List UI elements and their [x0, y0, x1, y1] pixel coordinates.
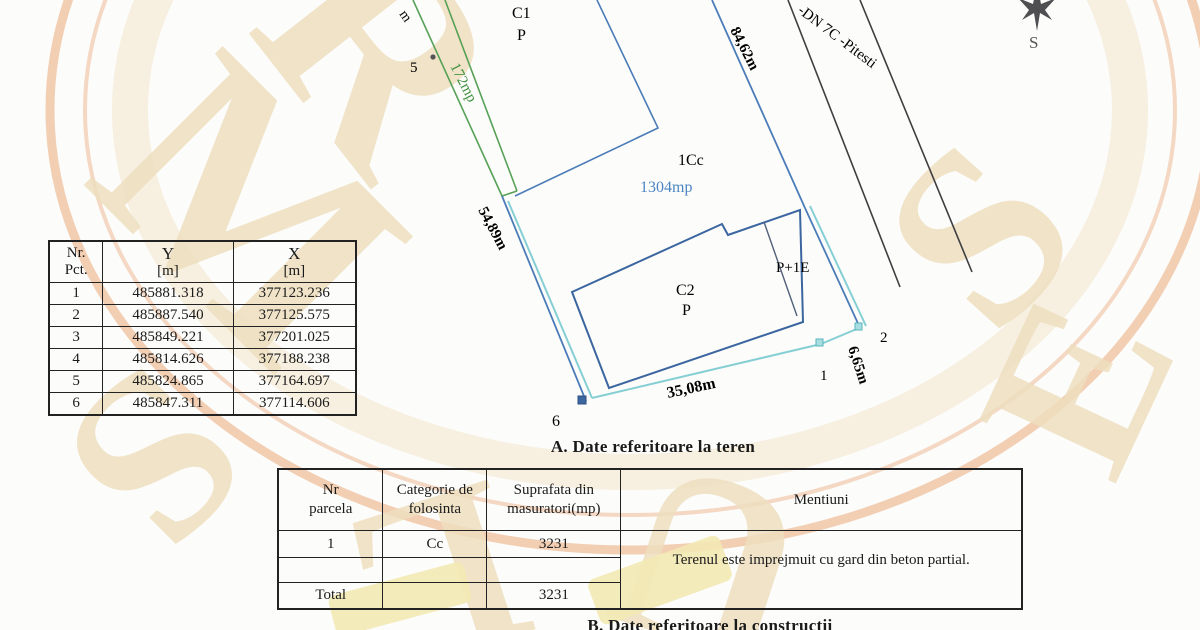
edge-fragment-label: m	[396, 8, 415, 26]
cell-point-y: 485814.626	[103, 349, 233, 371]
c2-floor-label: P	[682, 302, 691, 319]
cell-point-x: 377125.575	[233, 305, 356, 327]
fence-side-6m	[821, 328, 859, 344]
hdr-suprafata: Suprafata din	[514, 482, 594, 498]
point-5-marker	[430, 54, 435, 59]
hdr-categorie: Categorie de	[397, 482, 473, 498]
col-header-mentiuni: Mentiuni	[621, 469, 1022, 531]
cell-point-y: 485847.311	[103, 393, 233, 416]
col-header-pct: Pct.	[65, 262, 88, 278]
c2-label: C2	[676, 282, 695, 299]
col-header-nr-parcela: Nr parcela	[278, 469, 383, 531]
cell-point-x: 377201.025	[233, 327, 356, 349]
hdr-masuratori: masuratori(mp)	[507, 501, 600, 517]
coordinate-table: Nr. Pct. Y [m] X [m] 1 485881.318 377123…	[48, 240, 357, 416]
table-row: 4 485814.626 377188.238	[49, 349, 356, 371]
land-table-header: Nr parcela Categorie de folosinta Supraf…	[278, 469, 1022, 531]
c1-label: C1	[512, 5, 531, 22]
cell-total-area: 3231	[487, 583, 621, 610]
col-header-y: Y [m]	[103, 241, 233, 283]
dimension-left-label: 54,89m	[474, 204, 510, 253]
c2-outline	[572, 210, 803, 388]
cell-empty	[278, 558, 383, 583]
point-6-label: 6	[552, 413, 560, 430]
cell-point-x: 377123.236	[233, 283, 356, 305]
table-row: 1 Cc 3231 Terenul este imprejmuit cu gar…	[278, 531, 1022, 558]
col-header-x-unit: [m]	[283, 263, 305, 279]
cadastral-plan-page: M R S E U L S	[0, 0, 1200, 630]
cell-total-label: Total	[278, 583, 383, 610]
point-2-label: 2	[880, 330, 888, 346]
road-line-right	[860, 0, 972, 272]
annex-label: P+1E	[776, 260, 809, 276]
cell-empty	[383, 583, 487, 610]
cell-point-nr: 4	[49, 349, 103, 371]
table-row: 3 485849.221 377201.025	[49, 327, 356, 349]
cell-point-y: 485881.318	[103, 283, 233, 305]
road-label: -DN 7C -Pitesti	[795, 2, 880, 71]
fence-lines	[508, 201, 866, 398]
cell-empty	[383, 558, 487, 583]
table-row: 5 485824.865 377164.697	[49, 371, 356, 393]
fence-left	[508, 201, 592, 398]
hdr-nr: Nr	[323, 482, 339, 498]
parcel-boundary	[502, 0, 861, 401]
table-row: 2 485887.540 377125.575	[49, 305, 356, 327]
section-b-title: B. Date referitoare la constructii	[460, 616, 960, 630]
cell-point-y: 485824.865	[103, 371, 233, 393]
cell-point-y: 485849.221	[103, 327, 233, 349]
cell-parcel-nr: 1	[278, 531, 383, 558]
col-header-x-symbol: X	[236, 244, 353, 264]
dimension-side-label: 6,65m	[844, 344, 871, 386]
point-1-label: 1	[820, 368, 828, 384]
north-arrow-icon	[1018, 0, 1056, 31]
col-header-y-unit: [m]	[157, 263, 179, 279]
cell-point-x: 377188.238	[233, 349, 356, 371]
col-header-nr-pct: Nr. Pct.	[49, 241, 103, 283]
col-header-x: X [m]	[233, 241, 356, 283]
table-row: 6 485847.311 377114.606	[49, 393, 356, 416]
cell-point-nr: 2	[49, 305, 103, 327]
parcel-area-label: 1304mp	[640, 179, 692, 196]
cell-empty	[487, 558, 621, 583]
c1-floor-label: P	[517, 27, 526, 44]
cell-point-y: 485887.540	[103, 305, 233, 327]
col-header-y-symbol: Y	[105, 244, 230, 264]
point-6-marker	[578, 396, 586, 404]
cell-parcel-notes: Terenul este imprejmuit cu gard din beto…	[621, 531, 1022, 610]
hdr-parcela: parcela	[309, 501, 352, 517]
table-row: 1 485881.318 377123.236	[49, 283, 356, 305]
cell-point-nr: 5	[49, 371, 103, 393]
road-lines	[788, 0, 972, 287]
boundary-right-84m	[712, 0, 805, 208]
hdr-folosinta: folosinta	[409, 501, 462, 517]
boundary-left-54m	[502, 196, 586, 401]
cell-point-x: 377114.606	[233, 393, 356, 416]
c1-outline	[515, 0, 658, 196]
fence-right	[810, 206, 866, 326]
col-header-suprafata: Suprafata din masuratori(mp)	[487, 469, 621, 531]
land-data-table: Nr parcela Categorie de folosinta Supraf…	[277, 468, 1023, 610]
coordinate-table-header: Nr. Pct. Y [m] X [m]	[49, 241, 356, 283]
point-5-label: 5	[410, 60, 418, 76]
dimension-right-label: 84,62m	[726, 25, 761, 74]
point-2-marker	[855, 323, 862, 330]
cell-parcel-area: 3231	[487, 531, 621, 558]
cell-point-nr: 1	[49, 283, 103, 305]
cell-point-nr: 6	[49, 393, 103, 416]
point-1-marker	[816, 339, 823, 346]
boundary-right-lower	[805, 208, 861, 330]
compass-s-label: S	[1029, 33, 1038, 52]
col-header-nr: Nr.	[67, 245, 86, 261]
cell-parcel-category: Cc	[383, 531, 487, 558]
green-strip-line-left	[413, 0, 502, 196]
section-a-title: A. Date referitoare la teren	[403, 437, 903, 457]
col-header-categorie: Categorie de folosinta	[383, 469, 487, 531]
parcel-id-label: 1Cc	[678, 152, 704, 169]
cell-point-nr: 3	[49, 327, 103, 349]
cell-point-x: 377164.697	[233, 371, 356, 393]
